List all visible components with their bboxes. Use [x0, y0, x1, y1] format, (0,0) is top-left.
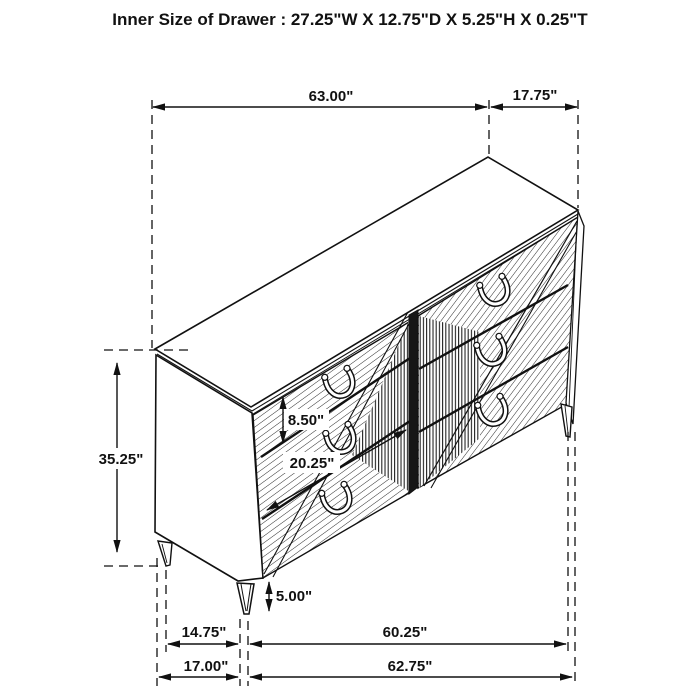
dimension-front-leg-spacing: 60.25" — [250, 624, 566, 644]
dim-label-side-width: 17.00" — [184, 658, 229, 675]
dimension-leg-height: 5.00" — [269, 582, 316, 611]
dim-label-depth: 17.75" — [513, 87, 558, 104]
dresser-drawing — [155, 157, 584, 614]
dresser-dimension-diagram: 63.00" 17.75" 35.25" 8.50" — [0, 0, 700, 700]
dim-label-drawer-depth: 20.25" — [290, 455, 335, 472]
dim-label-front-width: 62.75" — [388, 658, 433, 675]
dimension-depth: 17.75" — [491, 87, 577, 107]
dim-label-side-leg-spacing: 14.75" — [182, 624, 227, 641]
dim-label-overall-height: 35.25" — [99, 451, 144, 468]
dim-label-front-leg-spacing: 60.25" — [383, 624, 428, 641]
dim-label-overall-width: 63.00" — [309, 88, 354, 105]
dim-label-leg-height: 5.00" — [276, 588, 312, 605]
dim-label-drawer-front-height: 8.50" — [288, 412, 324, 429]
leg-back-left — [158, 541, 172, 566]
dimension-overall-height: 35.25" — [94, 363, 148, 552]
furniture-dimension-page: Inner Size of Drawer : 27.25"W X 12.75"D… — [0, 0, 700, 700]
center-divider — [409, 310, 418, 494]
dimension-side-leg-spacing: 14.75" — [168, 624, 238, 644]
dimension-side-width: 17.00" — [159, 658, 238, 677]
dimension-overall-width: 63.00" — [153, 88, 487, 107]
dimension-front-width: 62.75" — [250, 658, 572, 677]
